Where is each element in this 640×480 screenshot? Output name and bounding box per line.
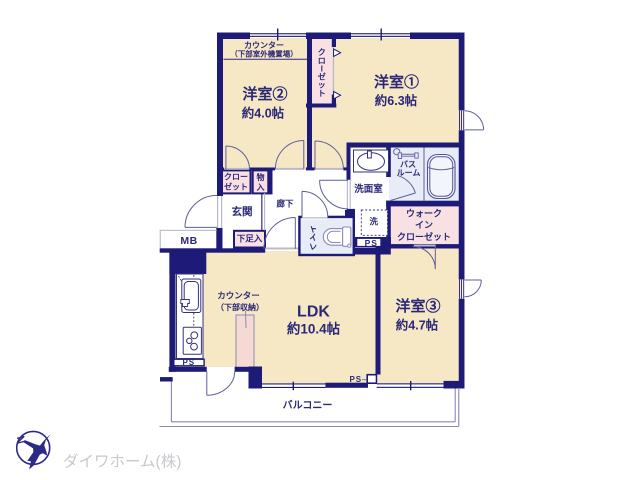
svg-text:下足入: 下足入 (237, 234, 263, 244)
svg-text:ゼット: ゼット (224, 182, 248, 192)
svg-text:約4.7帖: 約4.7帖 (396, 317, 439, 332)
svg-text:カウンター: カウンター (244, 40, 284, 50)
svg-text:ク: ク (318, 47, 326, 57)
svg-text:ウォーク: ウォーク (406, 209, 442, 219)
svg-text:PS: PS (349, 375, 362, 384)
svg-text:玄関: 玄関 (232, 205, 253, 218)
svg-text:バルコニー: バルコニー (283, 400, 333, 412)
svg-text:クローゼット: クローゼット (397, 231, 451, 242)
svg-text:（下部室外機置場）: （下部室外機置場） (230, 49, 298, 59)
svg-text:洋室①: 洋室① (374, 73, 419, 91)
svg-text:洋室③: 洋室③ (395, 297, 440, 315)
svg-text:ダイワホーム(株): ダイワホーム(株) (63, 453, 181, 471)
svg-text:入: 入 (256, 183, 265, 192)
svg-text:ト: ト (318, 89, 326, 98)
svg-text:MB: MB (180, 235, 197, 247)
svg-text:洗: 洗 (370, 217, 379, 227)
svg-text:イン: イン (415, 220, 433, 230)
svg-text:物: 物 (257, 172, 265, 182)
svg-text:カウンター: カウンター (217, 291, 260, 301)
svg-text:約4.0帖: 約4.0帖 (242, 106, 285, 121)
svg-text:ロ: ロ (318, 57, 326, 66)
svg-text:約6.3帖: 約6.3帖 (375, 93, 418, 108)
svg-text:（下部収納）: （下部収納） (216, 302, 264, 312)
svg-text:洗面室: 洗面室 (354, 183, 383, 195)
svg-text:クロー: クロー (224, 172, 248, 182)
svg-text:PS: PS (182, 358, 195, 367)
svg-text:廊下: 廊下 (276, 199, 294, 209)
svg-text:約10.4帖: 約10.4帖 (287, 321, 341, 337)
svg-text:ルーム: ルーム (397, 169, 421, 178)
svg-text:LDK: LDK (297, 304, 330, 321)
svg-text:PS: PS (365, 238, 378, 248)
svg-text:洋室②: 洋室② (242, 85, 287, 103)
